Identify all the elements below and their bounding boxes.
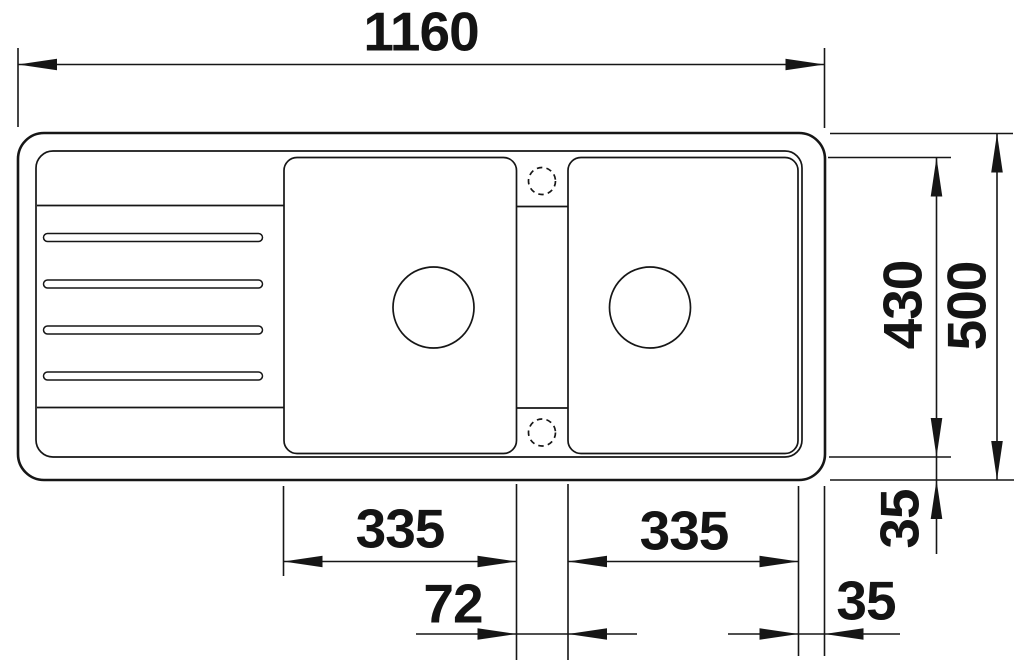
arrow-up (991, 134, 1003, 173)
left-bowl (284, 158, 517, 454)
arrow-left (568, 556, 607, 568)
dim-right-bowl-width: 335 (640, 504, 729, 559)
right-bowl (568, 158, 798, 454)
drainboard-rib (44, 372, 263, 380)
technical-drawing: 1160 430 500 35 335 335 72 35 (0, 0, 1028, 668)
arrow-right (760, 556, 799, 568)
arrow-up (931, 158, 943, 197)
sink-body (18, 133, 825, 480)
arrow-down (991, 441, 1003, 480)
arrow-up (931, 480, 943, 519)
dim-total-width: 1160 (363, 5, 478, 60)
arrow-right (478, 556, 517, 568)
drainboard-rib (44, 234, 263, 242)
arrow-down (931, 418, 943, 457)
dim-total-depth: 500 (940, 262, 995, 351)
drainboard-rib (44, 280, 263, 288)
right-drain-hole (610, 267, 691, 348)
dim-right-rim-offset: 35 (836, 574, 895, 629)
dim-bowl-gap: 72 (423, 577, 482, 632)
arrow-right (478, 628, 517, 640)
left-drain-hole (393, 267, 474, 348)
arrow-left (568, 628, 607, 640)
sink-inner-rim (36, 151, 802, 457)
tap-hole-bottom (529, 419, 556, 446)
arrow-right (786, 59, 825, 71)
dim-left-bowl-width: 335 (356, 502, 445, 557)
arrow-left (18, 59, 57, 71)
dimension-arrows (18, 59, 1003, 640)
arrow-left (284, 556, 323, 568)
dim-inner-depth: 430 (876, 261, 931, 350)
dim-bottom-rim-offset: 35 (873, 489, 928, 548)
tap-hole-top (529, 168, 556, 195)
drainboard-rib (44, 326, 263, 334)
sink-outer-outline (18, 133, 825, 480)
arrow-right (760, 628, 799, 640)
